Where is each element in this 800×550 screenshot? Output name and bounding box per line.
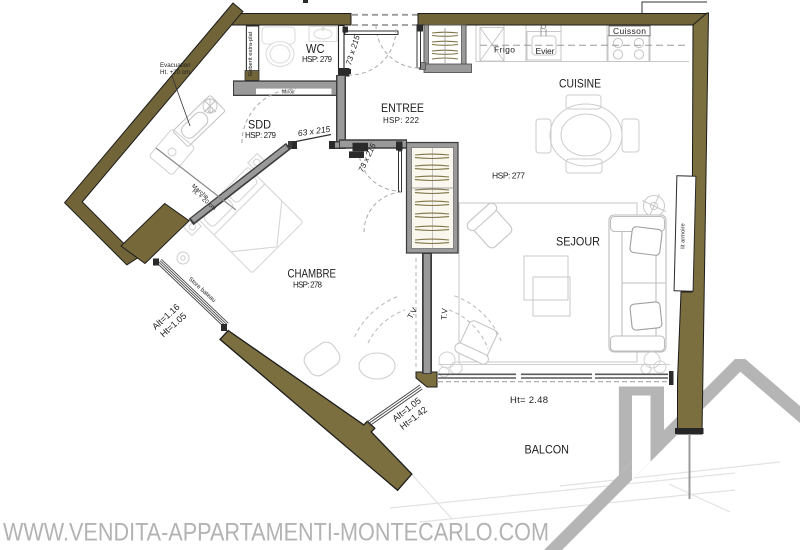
svg-text:Frigo: Frigo bbox=[494, 45, 515, 55]
svg-text:HSP: 278: HSP: 278 bbox=[293, 281, 323, 290]
svg-text:HSP: 222: HSP: 222 bbox=[383, 116, 420, 125]
svg-text:Ht= 2.48: Ht= 2.48 bbox=[510, 395, 548, 406]
svg-text:lit armoire: lit armoire bbox=[681, 223, 687, 248]
svg-text:WC: WC bbox=[306, 41, 325, 56]
svg-text:HSP: 277: HSP: 277 bbox=[492, 171, 525, 181]
svg-text:HSP: 279: HSP: 279 bbox=[302, 55, 333, 64]
svg-text:CHAMBRE: CHAMBRE bbox=[288, 267, 337, 281]
svg-text:Evacuation: Evacuation bbox=[160, 62, 191, 69]
svg-text:CUISINE: CUISINE bbox=[559, 77, 601, 91]
svg-text:BALCON: BALCON bbox=[525, 445, 570, 457]
svg-text:SEJOUR: SEJOUR bbox=[556, 235, 600, 249]
svg-text:Ht. +20 cm: Ht. +20 cm bbox=[160, 69, 190, 76]
svg-text:HSP: 279: HSP: 279 bbox=[245, 131, 277, 140]
svg-text:ENTREE: ENTREE bbox=[381, 101, 424, 115]
svg-text:T.V: T.V bbox=[440, 307, 450, 320]
svg-text:Evier: Evier bbox=[536, 46, 555, 56]
svg-text:WWW.VENDITA-APPARTAMENTI-MONTE: WWW.VENDITA-APPARTAMENTI-MONTECARLO.COM bbox=[3, 519, 549, 547]
svg-text:Cuisson: Cuisson bbox=[613, 26, 646, 36]
svg-text:Miroir: Miroir bbox=[282, 90, 295, 96]
svg-text:SDD: SDD bbox=[248, 118, 271, 132]
svg-text:Geberit extra-plat: Geberit extra-plat bbox=[248, 31, 254, 76]
